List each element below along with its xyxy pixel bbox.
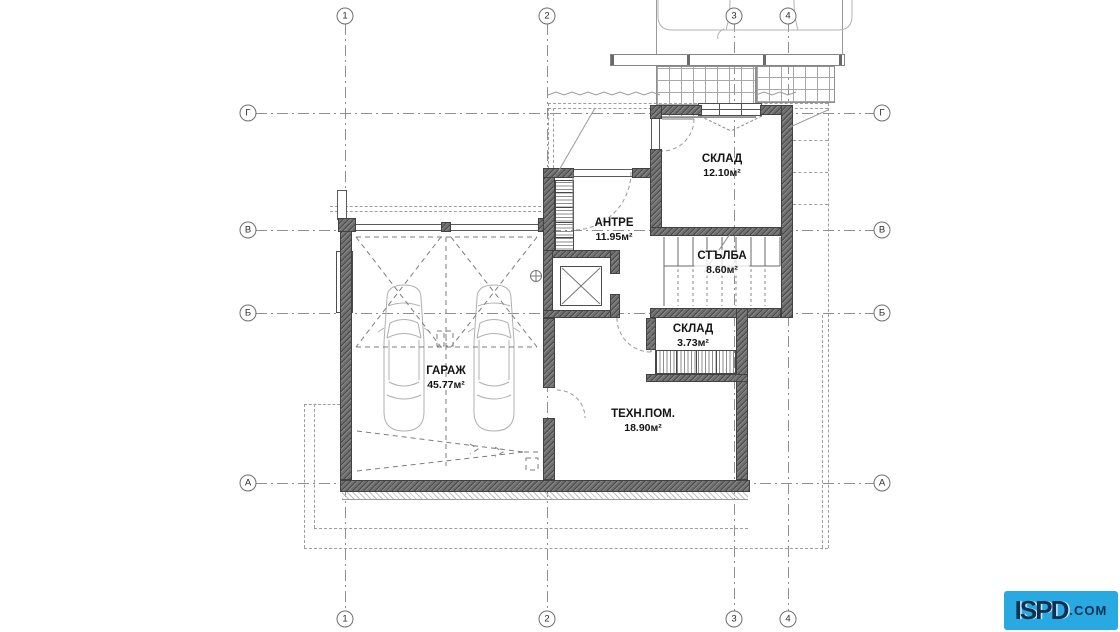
grid-bubble-col-4: 4 (780, 611, 797, 628)
room-name: СКЛАД (702, 153, 742, 167)
grid-bubble-row-Г: Г (240, 105, 257, 122)
grid-bubble-col-1: 1 (337, 611, 354, 628)
room-name: ТЕХН.ПОМ. (611, 408, 675, 422)
grid-bubble-col-3: 3 (726, 8, 743, 25)
room-label-sklad-3: СКЛАД 3.73м² (673, 323, 713, 349)
elevator-cross (562, 268, 600, 304)
ramp-symbol (357, 431, 541, 471)
grid-bubble-row-А: А (240, 475, 257, 492)
room-area: 12.10м² (702, 167, 742, 180)
watermark-text: ISPD (1015, 595, 1068, 626)
grid-bubble-col-4: 4 (780, 8, 797, 25)
grid-bubble-col-1: 1 (337, 8, 354, 25)
grid-bubble-row-А: А (874, 475, 891, 492)
room-label-antre: АНТРЕ 11.95м² (595, 217, 634, 243)
grid-bubble-col-2: 2 (539, 611, 556, 628)
plan-linework-svg (0, 0, 1120, 632)
room-name: СКЛАД (673, 323, 713, 337)
grid-bubble-row-В: В (240, 222, 257, 239)
car-garage-right-icon (468, 285, 520, 431)
car-top-icon (658, 0, 852, 39)
garage-door-swing-lines (356, 237, 537, 466)
room-area: 18.90м² (611, 422, 675, 435)
terrain-cut-lines (548, 92, 828, 172)
car-garage-left-icon (378, 285, 430, 431)
window-swing-dashes (700, 116, 762, 131)
grid-bubble-col-3: 3 (726, 611, 743, 628)
room-label-tehn: ТЕХН.ПОМ. 18.90м² (611, 408, 675, 434)
watermark-logo: ISPD.COM (1004, 591, 1118, 630)
grid-bubble-row-Г: Г (874, 105, 891, 122)
room-area: 45.77м² (426, 379, 465, 392)
grid-bubble-col-2: 2 (539, 8, 556, 25)
room-name: ГАРАЖ (426, 365, 465, 379)
room-area: 8.60м² (697, 264, 746, 277)
room-area: 11.95м² (595, 231, 634, 244)
grid-bubble-row-В: В (874, 222, 891, 239)
grid-bubble-row-Б: Б (240, 305, 257, 322)
door-arcs (557, 119, 694, 418)
room-name: АНТРЕ (595, 217, 634, 231)
room-label-stylba: СТЪЛБА 8.60м² (694, 250, 749, 276)
floor-drain-icon (530, 270, 542, 282)
room-label-garage: ГАРАЖ 45.77м² (426, 365, 465, 391)
room-area: 3.73м² (673, 337, 713, 350)
room-label-sklad-12: СКЛАД 12.10м² (702, 153, 742, 179)
grid-bubble-row-Б: Б (874, 305, 891, 322)
floor-plan: СКЛАД 12.10м² АНТРЕ 11.95м² СТЪЛБА 8.60м… (0, 0, 1120, 632)
room-name: СТЪЛБА (697, 250, 746, 264)
watermark-suffix: .COM (1069, 603, 1107, 618)
